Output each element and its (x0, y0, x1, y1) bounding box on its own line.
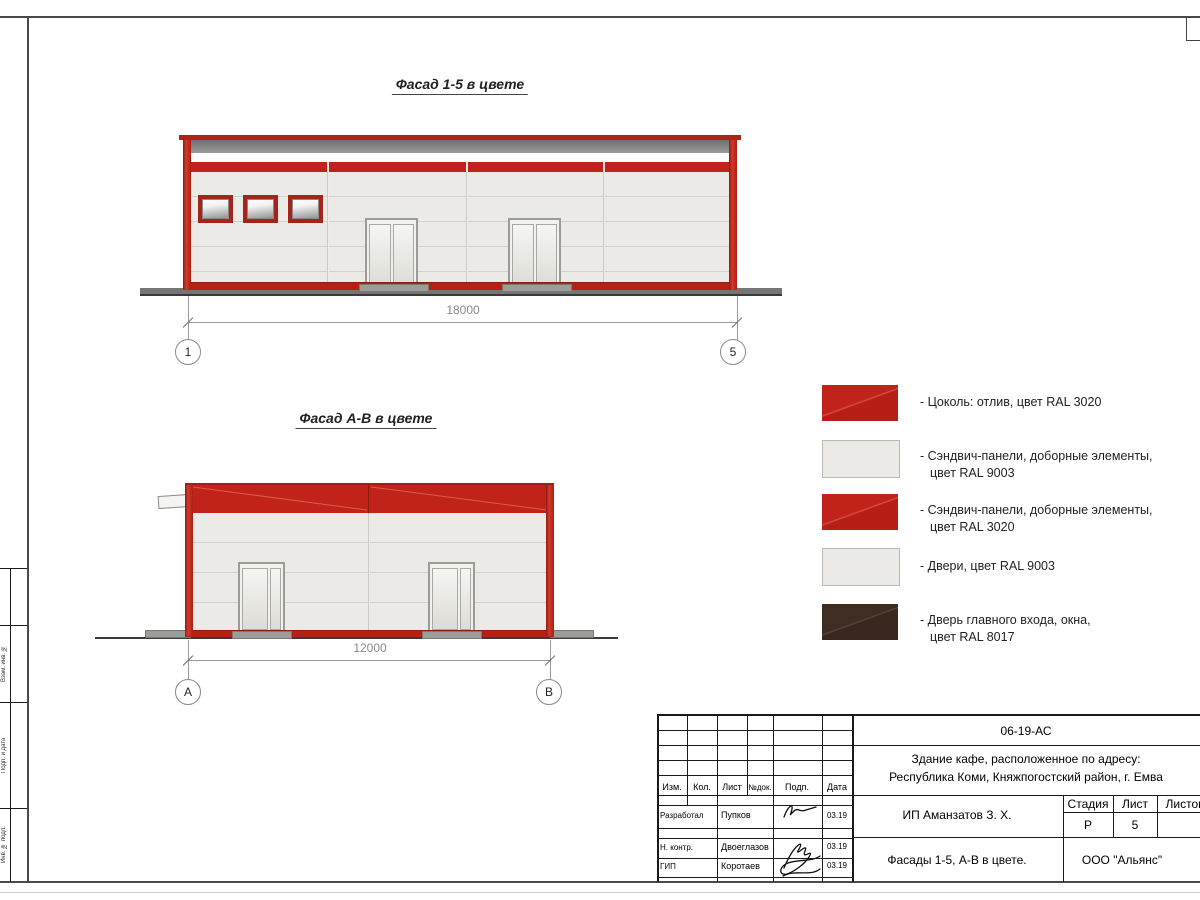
frame-left-line (27, 16, 29, 882)
col-podp: Подп. (785, 782, 809, 792)
parapet-band (183, 140, 737, 153)
signature-glyph (774, 836, 826, 880)
dimension-line (188, 322, 738, 323)
door-sill (422, 631, 482, 639)
legend-swatch-ral8017 (822, 604, 898, 640)
corner-post (185, 485, 193, 636)
plinth-strip (183, 282, 737, 290)
signature-glyph (780, 801, 820, 823)
door-leaf (270, 568, 281, 630)
door (428, 562, 475, 632)
door-leaf (536, 224, 558, 287)
sheets-header: Листов (1166, 797, 1200, 811)
col-list: Лист (722, 782, 742, 792)
extension-line (737, 296, 738, 340)
stage-value: Р (1084, 818, 1092, 832)
project-address-line2: Республика Коми, Княжпогостский район, г… (889, 770, 1163, 784)
legend-label: - Цоколь: отлив, цвет RAL 3020 (920, 394, 1101, 411)
door-sill (502, 284, 572, 292)
row-name: Двоеглазов (721, 842, 769, 852)
panel-division (603, 172, 605, 282)
door-leaf (242, 568, 268, 630)
sheet-header: Лист (1122, 797, 1148, 811)
row-name: Коротаев (721, 861, 760, 871)
sheet-value: 5 (1132, 818, 1139, 832)
company-name: ООО "Альянс" (1082, 853, 1162, 867)
panel-division (368, 513, 370, 630)
row-date: 03.19 (827, 842, 847, 851)
roof-slope-lines (185, 483, 554, 513)
dimension-line (188, 660, 551, 661)
legend-swatch-ral3020 (822, 385, 898, 421)
door (365, 218, 418, 289)
door-sill (232, 631, 292, 639)
legend-swatch-ral3020 (822, 494, 898, 530)
row-role: ГИП (660, 862, 676, 871)
window (198, 195, 233, 223)
margin-divider (0, 568, 27, 569)
red-band (188, 162, 732, 172)
col-izm: Изм. (662, 782, 681, 792)
legend-label: - Дверь главного входа, окна, цвет RAL 8… (920, 612, 1091, 646)
corner-post (546, 485, 554, 636)
door (238, 562, 285, 632)
dimension-value: 18000 (446, 303, 479, 317)
paper-edge-line (0, 892, 1200, 893)
frame-top-line (0, 16, 1200, 18)
axis-marker-5: 5 (720, 339, 746, 365)
margin-divider (0, 702, 27, 703)
dimension-value: 12000 (353, 641, 386, 655)
col-data: Дата (827, 782, 847, 792)
door-sill (359, 284, 429, 292)
band-break (327, 162, 329, 172)
axis-marker-1: 1 (175, 339, 201, 365)
door-leaf (393, 224, 415, 287)
row-date: 03.19 (827, 861, 847, 870)
margin-divider (0, 625, 27, 626)
facade-a-b-drawing (185, 483, 554, 636)
window (243, 195, 278, 223)
frame-bottom-line (0, 881, 1200, 883)
panel-division (466, 172, 468, 282)
client-name: ИП Аманзатов З. Х. (902, 808, 1011, 822)
extension-line (188, 296, 189, 340)
col-kol: Кол. (693, 782, 711, 792)
wall-panels (188, 172, 732, 282)
legend-label: - Сэндвич-панели, доборные элементы, цве… (920, 448, 1153, 482)
legend-label: - Сэндвич-панели, доборные элементы, цве… (920, 502, 1153, 536)
col-ndok: №док. (748, 783, 771, 792)
row-role: Разработал (660, 811, 704, 820)
legend-swatch-ral9003 (822, 548, 900, 586)
door-leaf (369, 224, 391, 287)
legend-swatch-ral9003 (822, 440, 900, 478)
stage-header: Стадия (1068, 797, 1109, 811)
row-date: 03.19 (827, 811, 847, 820)
facade-a-b-title: Фасад А-В в цвете (296, 410, 437, 429)
band-break (603, 162, 605, 172)
facade-1-5-title: Фасад 1-5 в цвете (392, 76, 528, 95)
margin-divider (0, 808, 27, 809)
legend-label: - Двери, цвет RAL 9003 (920, 558, 1055, 575)
corner-post (729, 140, 737, 290)
sheet-title: Фасады 1-5, А-В в цвете. (887, 853, 1026, 867)
panel-division (327, 172, 329, 282)
window (288, 195, 323, 223)
facade-1-5-drawing (183, 135, 737, 296)
margin-label: Инв. № подл. (1, 810, 7, 880)
door-leaf (460, 568, 471, 630)
doc-number: 06-19-АС (1000, 724, 1051, 738)
corner-post (183, 140, 191, 290)
white-band (183, 153, 737, 162)
margin-label: Взам. инв. № (1, 627, 7, 700)
project-address-line1: Здание кафе, расположенное по адресу: (911, 752, 1140, 766)
footing-pad (550, 630, 594, 638)
axis-marker-a: А (175, 679, 201, 705)
door-leaf (432, 568, 458, 630)
axis-marker-b: В (536, 679, 562, 705)
band-seam (368, 485, 369, 513)
drawing-sheet: Взам. инв. № Подп. и дата Инв. № подл. Ф… (0, 0, 1200, 900)
row-role: Н. контр. (660, 843, 693, 852)
door-leaf (512, 224, 534, 287)
margin-inner-line (10, 568, 11, 882)
band-break (466, 162, 468, 172)
margin-label: Подп. и дата (1, 704, 7, 806)
frame-corner-box (1186, 17, 1200, 41)
door (508, 218, 561, 289)
row-name: Пупков (721, 810, 751, 820)
